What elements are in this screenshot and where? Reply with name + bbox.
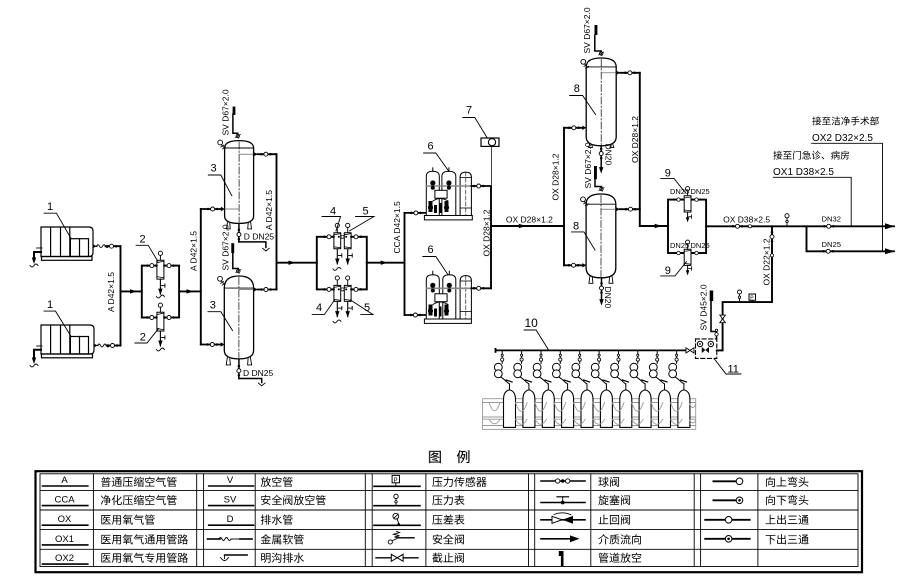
- svg-text:5: 5: [362, 206, 368, 218]
- svg-text:OX D28×1.2: OX D28×1.2: [630, 116, 640, 163]
- svg-text:SV: SV: [224, 495, 237, 506]
- svg-text:D DN25: D DN25: [244, 232, 275, 242]
- svg-text:D DN25: D DN25: [243, 368, 274, 378]
- svg-text:1: 1: [47, 201, 53, 213]
- svg-text:8: 8: [573, 221, 579, 233]
- svg-text:1: 1: [47, 299, 53, 311]
- svg-text:OX2: OX2: [55, 553, 74, 564]
- svg-text:4: 4: [316, 302, 322, 314]
- svg-text:A D42×1.5: A D42×1.5: [106, 272, 116, 312]
- svg-text:OX2 D32×2.5: OX2 D32×2.5: [812, 133, 873, 144]
- svg-text:OX D28×1.2: OX D28×1.2: [506, 214, 553, 224]
- svg-text:4: 4: [330, 206, 336, 218]
- svg-text:DN25: DN25: [670, 187, 689, 196]
- svg-text:SV D45×2.0: SV D45×2.0: [699, 284, 709, 330]
- svg-text:V: V: [227, 475, 234, 486]
- svg-text:DN20: DN20: [604, 144, 614, 166]
- svg-text:OX D28×1.2: OX D28×1.2: [551, 153, 561, 200]
- svg-text:OX1: OX1: [55, 534, 74, 545]
- svg-text:2: 2: [140, 331, 146, 343]
- svg-text:A D42×1.5: A D42×1.5: [189, 231, 199, 271]
- svg-text:A: A: [61, 475, 68, 486]
- svg-text:OX1 D38×2.5: OX1 D38×2.5: [773, 167, 834, 178]
- svg-text:8: 8: [574, 83, 580, 95]
- svg-text:3: 3: [210, 300, 216, 312]
- svg-text:SV D67×2.0: SV D67×2.0: [220, 224, 230, 270]
- svg-text:DN25: DN25: [822, 240, 841, 249]
- svg-text:DN25: DN25: [691, 241, 710, 250]
- svg-text:A D42×1.5: A D42×1.5: [264, 190, 274, 230]
- svg-text:DN32: DN32: [822, 214, 841, 223]
- svg-text:6: 6: [428, 141, 434, 153]
- svg-text:2: 2: [140, 234, 146, 246]
- svg-text:SV D67×2.0: SV D67×2.0: [583, 142, 593, 188]
- svg-text:DN25: DN25: [691, 187, 710, 196]
- svg-text:D: D: [227, 514, 234, 525]
- svg-text:6: 6: [428, 244, 434, 256]
- svg-text:10: 10: [525, 316, 539, 330]
- svg-text:OX: OX: [58, 514, 72, 525]
- svg-text:OX D28×1.2: OX D28×1.2: [481, 209, 491, 256]
- svg-text:SV D67×2.0: SV D67×2.0: [221, 89, 231, 135]
- svg-text:CCA D42×1.5: CCA D42×1.5: [392, 201, 402, 253]
- svg-text:OX D22×1.2: OX D22×1.2: [762, 238, 772, 285]
- svg-text:SV D67×2.0: SV D67×2.0: [582, 7, 592, 53]
- svg-text:OX D38×2.5: OX D38×2.5: [723, 215, 770, 225]
- svg-text:DN25: DN25: [670, 241, 689, 250]
- svg-text:3: 3: [211, 163, 217, 175]
- svg-text:9: 9: [665, 168, 671, 180]
- svg-text:11: 11: [728, 364, 739, 376]
- svg-text:CCA: CCA: [54, 495, 75, 506]
- svg-text:DN20: DN20: [603, 287, 613, 309]
- svg-text:9: 9: [665, 265, 671, 277]
- svg-text:7: 7: [466, 105, 472, 117]
